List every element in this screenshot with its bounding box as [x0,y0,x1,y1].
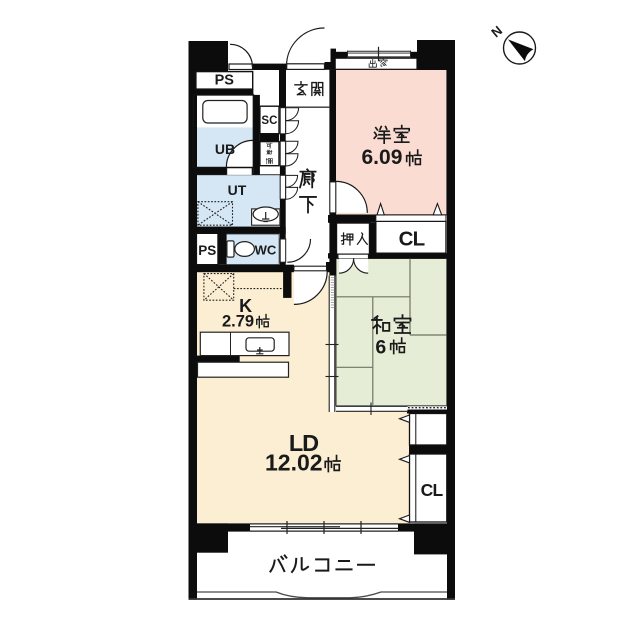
svg-text:6.09: 6.09 [362,146,403,169]
svg-text:CL: CL [399,227,425,250]
svg-text:UT: UT [228,182,247,198]
svg-text:6: 6 [375,337,386,359]
svg-text:PS: PS [198,243,216,258]
svg-text:WC: WC [255,242,277,257]
svg-text:2.79: 2.79 [222,312,254,330]
svg-text:12.02: 12.02 [265,450,323,476]
svg-text:PS: PS [215,72,235,88]
svg-text:SC: SC [261,115,277,127]
svg-text:CL: CL [421,480,444,500]
svg-text:UB: UB [215,141,235,157]
